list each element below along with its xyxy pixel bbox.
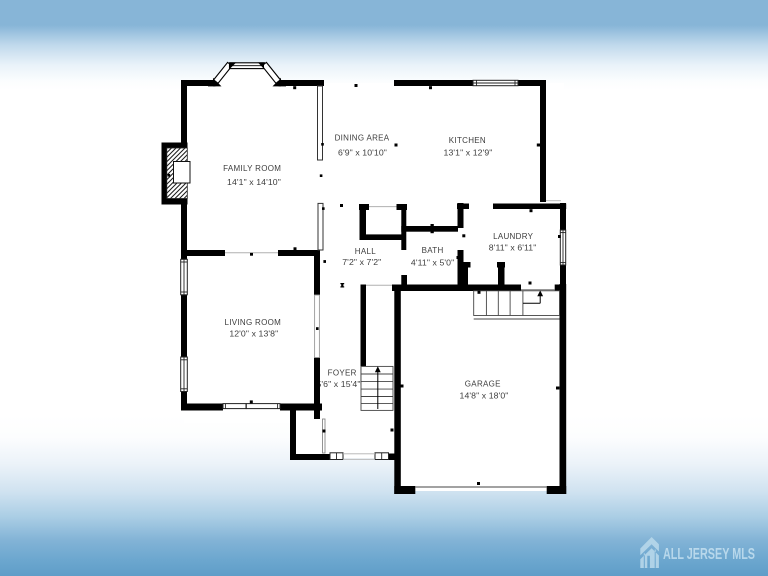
- svg-text:FOYER: FOYER: [328, 368, 357, 377]
- svg-text:LAUNDRY: LAUNDRY: [493, 232, 534, 241]
- svg-text:DINING AREA: DINING AREA: [335, 133, 390, 142]
- svg-text:KITCHEN: KITCHEN: [449, 136, 486, 145]
- svg-text:ALL JERSEY MLS: ALL JERSEY MLS: [663, 546, 755, 563]
- svg-text:7'2" x 7'2": 7'2" x 7'2": [342, 257, 381, 267]
- svg-text:BATH: BATH: [422, 246, 444, 255]
- svg-text:13'1" x 12'9": 13'1" x 12'9": [444, 147, 493, 157]
- svg-text:12'0" x 13'8": 12'0" x 13'8": [229, 329, 278, 339]
- svg-text:14'1" x 14'10": 14'1" x 14'10": [227, 177, 281, 187]
- svg-text:6'9" x 10'10": 6'9" x 10'10": [338, 147, 387, 157]
- svg-text:14'8" x 18'0": 14'8" x 18'0": [460, 391, 509, 401]
- svg-text:5'6" x 15'4": 5'6" x 15'4": [316, 379, 360, 389]
- svg-text:HALL: HALL: [355, 247, 376, 256]
- svg-text:GARAGE: GARAGE: [465, 380, 501, 389]
- svg-text:4'11" x 5'0": 4'11" x 5'0": [411, 258, 454, 268]
- svg-text:LIVING ROOM: LIVING ROOM: [224, 318, 281, 327]
- svg-text:FAMILY ROOM: FAMILY ROOM: [223, 164, 281, 173]
- svg-text:8'11" x 6'11": 8'11" x 6'11": [489, 243, 537, 253]
